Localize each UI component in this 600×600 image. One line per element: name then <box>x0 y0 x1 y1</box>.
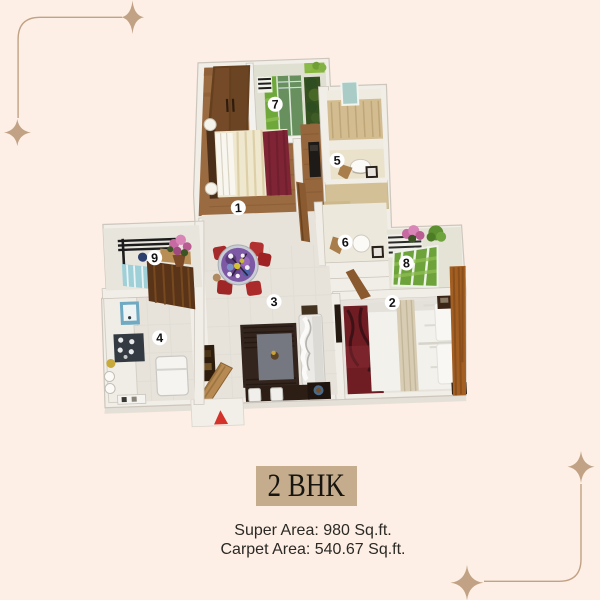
svg-text:7: 7 <box>271 98 279 112</box>
svg-text:5: 5 <box>333 154 341 168</box>
svg-text:3: 3 <box>270 295 278 309</box>
svg-text:2: 2 <box>388 296 396 310</box>
svg-text:1: 1 <box>234 201 242 215</box>
svg-text:6: 6 <box>341 235 349 249</box>
svg-text:9: 9 <box>151 251 159 265</box>
svg-text:4: 4 <box>156 331 164 345</box>
svg-text:8: 8 <box>403 256 411 270</box>
